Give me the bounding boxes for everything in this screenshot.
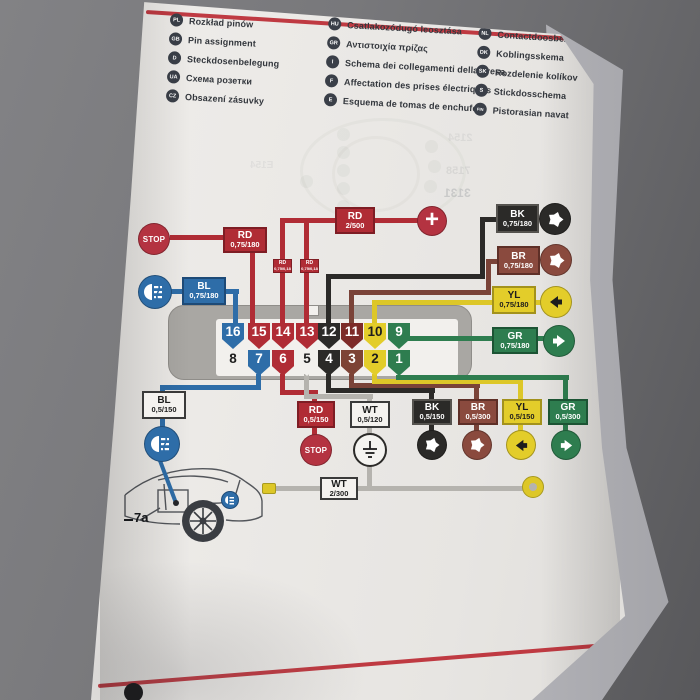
wire-brown-top-v (486, 259, 491, 295)
arrow-left-icon (514, 438, 529, 453)
wire-label-rd-jumper-1: RD 0,75/0,18 (273, 259, 292, 273)
turn-left-circle-bottom (506, 430, 536, 460)
figure-reference-tick (124, 519, 133, 521)
lamp-burst-icon (424, 437, 440, 453)
wire-yellow-bot-v (518, 379, 523, 401)
ground-icon (360, 440, 380, 460)
wire-red-stop (170, 235, 226, 240)
wire-black-top-h (326, 274, 485, 279)
legend-column-3: NLContactdoosbezettingDKKoblingsskemaSKR… (473, 26, 594, 122)
legend-language-badge: E (324, 93, 338, 107)
wire-spec: 0,5/150 (303, 416, 328, 424)
legend-language-badge: HU (328, 17, 342, 31)
legend-item-sk: SKRozdelenie kolíkov (476, 64, 592, 84)
legend-label: Схема розетки (186, 73, 253, 86)
wire-label-wt-bottom: WT 0,5/120 (350, 401, 390, 428)
legend-label: Affectation des prises électriques (344, 77, 492, 95)
legend-language-badge: I (326, 55, 340, 69)
legend-language-badge: UA (167, 70, 181, 84)
legend-label: Obsazení zásuvky (185, 92, 265, 106)
wire-spec: 0,75/180 (189, 292, 218, 300)
tail-light-circle-br-top (540, 244, 572, 276)
wire-red-to-plus (373, 218, 419, 223)
legend-language-badge: CZ (166, 89, 180, 103)
turn-right-circle-top (543, 325, 575, 357)
ring-terminal (522, 476, 544, 498)
ghost-dot (337, 164, 350, 177)
wire-spec: 0,5/120 (357, 416, 382, 424)
ghost-text: 2154 (448, 132, 472, 144)
wire-spec: 0,75/0,18 (301, 267, 318, 271)
wire-brown-top-h (349, 290, 491, 295)
legend-label: Pistorasian navat (492, 105, 569, 120)
ghost-dot (425, 140, 438, 153)
ground-circle (353, 433, 387, 467)
wire-red-pin15 (250, 251, 255, 325)
fog-light-circle-bottom (144, 426, 180, 462)
legend-label: Steckdosenbelegung (187, 54, 280, 69)
legend-item-ua: UAСхема розетки (167, 70, 279, 89)
wire-yellow-top-h (372, 300, 494, 305)
page-bottom-accent-line (98, 643, 613, 688)
wire-spec: 0,5/300 (555, 413, 580, 421)
ghost-dot (337, 182, 350, 195)
wire-label-rd-main: RD 0,75/180 (223, 227, 267, 253)
rear-fog-icon (144, 282, 166, 302)
wire-label-gr-top: GR 0,75/180 (492, 327, 538, 354)
legend-language-badge: GB (169, 32, 183, 46)
wire-white-pin5 (304, 374, 309, 396)
legend-label: Esquema de tomas de enchufe (343, 95, 478, 113)
legend-item-pl: PLRozkład pinów (170, 13, 282, 32)
wire-spec: 0,5/150 (151, 406, 176, 414)
legend-label: Koblingsskema (496, 48, 564, 62)
rear-fog-icon (151, 434, 173, 454)
wire-label-bk-bottom: BK 0,5/150 (412, 399, 452, 425)
page-shadow-corner (90, 560, 370, 700)
wire-label-gr-bottom: GR 0,5/300 (548, 399, 588, 425)
legend-label: Csatlakozódugó leosztása (347, 20, 462, 36)
wire-spec: 2/500 (346, 222, 365, 230)
legend-label: Rozkład pinów (189, 16, 254, 29)
wire-spec: 0,75/180 (503, 220, 532, 228)
battery-plus-circle: + (417, 206, 447, 236)
legend-label: Rozdelenie kolíkov (495, 67, 578, 82)
wire-label-bl-top: BL 0,75/180 (182, 277, 226, 305)
wire-label-rd-bottom: RD 0,5/150 (297, 401, 335, 428)
legend-item-d: DSteckdosenbelegung (168, 51, 280, 70)
legend-language-badge: F (325, 74, 339, 88)
legend-label: Pin assignment (188, 35, 256, 49)
wire-spec: 0,5/300 (465, 413, 490, 421)
wire-label-yl-top: YL 0,75/180 (492, 286, 536, 314)
flat-terminal (262, 483, 276, 494)
legend-language-badge: SK (476, 64, 490, 78)
wire-blue-into-car (159, 458, 176, 503)
lamp-burst-icon (469, 437, 485, 453)
wire-spec: 0,5/150 (419, 413, 444, 421)
wire-green-bot-v (563, 375, 568, 401)
arrow-left-icon (548, 294, 564, 310)
wire-black-bot-h (326, 388, 435, 393)
ghost-dot (428, 160, 441, 173)
ghost-dot (300, 175, 313, 188)
wire-blue-pin16 (233, 289, 238, 325)
legend-language-badge: DK (477, 45, 491, 59)
wire-label-wt-ground: WT 2/300 (320, 477, 358, 500)
legend-language-badge: PL (170, 13, 184, 27)
lamp-burst-icon (547, 211, 564, 228)
wire-label-rd-power: RD 2/500 (335, 207, 375, 234)
legend-label: Stickdosschema (494, 86, 567, 101)
wire-label-rd-jumper-2: RD 0,75/0,18 (300, 259, 319, 273)
lamp-burst-icon (548, 252, 565, 269)
legend-language-badge: D (168, 51, 182, 65)
wire-spec: 0,75/180 (500, 342, 529, 350)
wire-label-bk-top: BK 0,75/180 (496, 204, 539, 233)
legend-language-badge: GR (327, 36, 341, 50)
legend-language-badge: NL (478, 26, 492, 40)
ghost-text: E154 (250, 160, 273, 171)
legend-item-s: SStickdosschema (475, 83, 591, 103)
wire-spec: 0,5/150 (509, 413, 534, 421)
page-number-dot (124, 683, 143, 700)
ghost-text: 7158 (446, 165, 470, 177)
wire-spec: 0,75/0,18 (274, 267, 291, 271)
wire-white-ground-run (274, 486, 524, 491)
wire-white-bot-h (304, 394, 373, 399)
ghost-text: 3131 (444, 186, 471, 200)
legend-label: Contactdoosbezetting (497, 29, 594, 45)
figure-reference: 7a (134, 510, 148, 525)
legend-language-badge: FIN (473, 102, 487, 116)
wire-red-bridge (280, 218, 337, 223)
photographed-instruction-sheet: PLRozkład pinówGBPin assignmentDSteckdos… (0, 0, 700, 700)
tail-light-circle-bk-bottom (417, 430, 447, 460)
legend-column-1: PLRozkład pinówGBPin assignmentDSteckdos… (166, 13, 282, 108)
turn-left-circle-top (540, 286, 572, 318)
car-rear-illustration (122, 458, 270, 553)
ghost-dot (424, 180, 437, 193)
stop-light-circle-top: STOP (138, 223, 170, 255)
legend-item-gb: GBPin assignment (169, 32, 281, 51)
wire-spec: 2/300 (330, 490, 349, 498)
legend-label: Αντιστοιχία πρίζας (346, 39, 428, 54)
wire-spec: 0,75/180 (504, 262, 533, 270)
ghost-dot (337, 128, 350, 141)
legend-language-badge: S (475, 83, 489, 97)
arrow-right-icon (559, 438, 574, 453)
stop-label: STOP (143, 235, 165, 244)
wire-black-top-v (480, 217, 485, 279)
fog-light-circle-top (138, 275, 172, 309)
wire-brown-pin11 (349, 290, 354, 325)
tail-light-circle-br-bottom (462, 430, 492, 460)
stop-label: STOP (305, 446, 327, 455)
legend-item-fin: FINPistorasian navat (473, 102, 589, 122)
ghost-dot (337, 146, 350, 159)
wire-label-bl-bottom: BL 0,5/150 (142, 391, 186, 419)
turn-right-circle-bottom (551, 430, 581, 460)
wire-spec: 0,75/180 (499, 301, 528, 309)
wire-black-pin12 (326, 274, 331, 325)
legend-item-cz: CZObsazení zásuvky (166, 89, 278, 108)
tail-light-circle-bk-top (539, 203, 571, 235)
wire-label-yl-bottom: YL 0,5/150 (502, 399, 542, 425)
wire-green-pin9 (408, 336, 494, 341)
wire-label-br-top: BR 0,75/180 (497, 246, 540, 275)
wire-spec: 0,75/180 (230, 241, 259, 249)
arrow-right-icon (551, 333, 567, 349)
wire-green-bot-h (396, 375, 569, 380)
stop-light-circle-bottom: STOP (300, 434, 332, 466)
wire-blue-bot-h (160, 385, 261, 390)
wire-label-br-bottom: BR 0,5/300 (458, 399, 498, 425)
